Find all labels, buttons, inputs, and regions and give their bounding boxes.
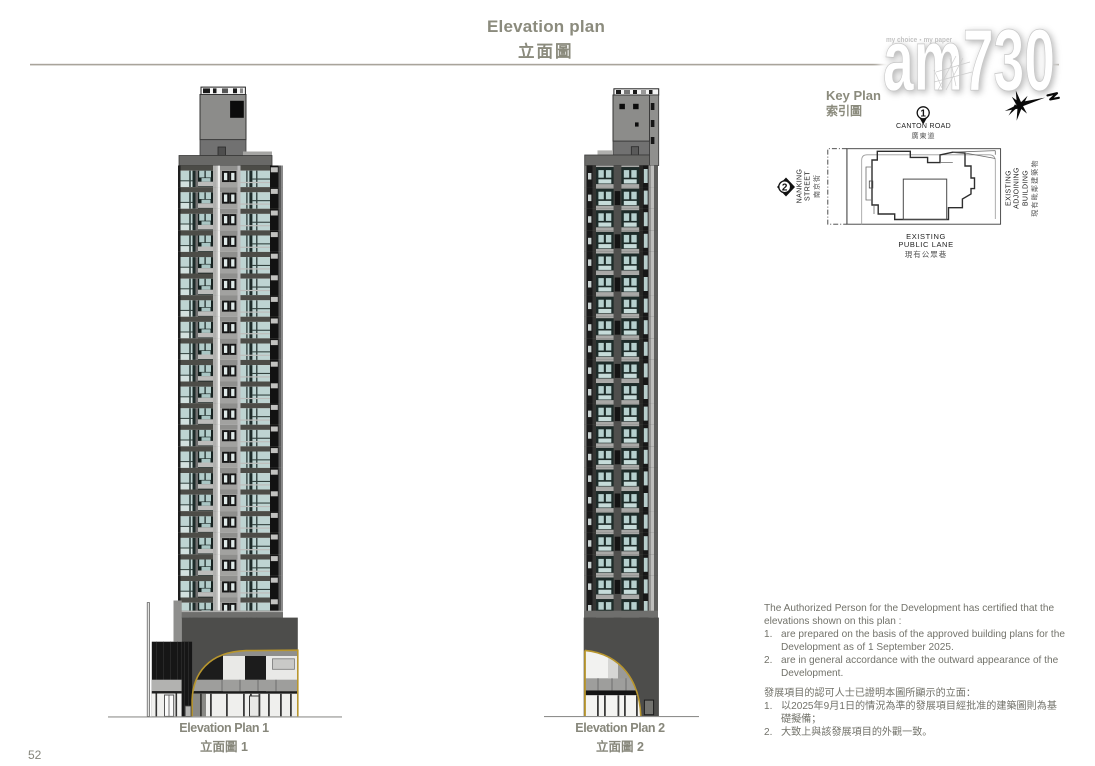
svg-text:2: 2 bbox=[782, 183, 788, 194]
svg-text:1: 1 bbox=[920, 109, 926, 120]
svg-text:am730: am730 bbox=[883, 12, 1055, 109]
